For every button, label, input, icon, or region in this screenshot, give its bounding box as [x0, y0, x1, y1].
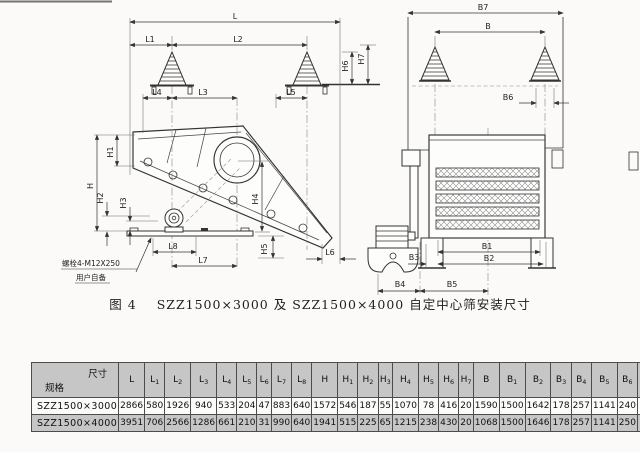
col-header-B: B [473, 363, 499, 398]
dim-label-L1: L1 [145, 35, 155, 44]
value-cell: 78 [418, 398, 438, 415]
dim-label-H5: H5 [260, 243, 269, 254]
value-cell: 580 [145, 398, 165, 415]
dim-label-L3: L3 [198, 88, 208, 97]
value-cell: 1926 [165, 398, 191, 415]
value-cell: 250 [617, 415, 637, 432]
dim-label-B3: B3 [409, 253, 420, 262]
figure-number: 图 4 [109, 294, 136, 313]
value-cell: 178 [551, 415, 571, 432]
value-cell: 20 [459, 398, 473, 415]
col-header-L: L [119, 363, 145, 398]
col-header-B2: B2 [525, 363, 551, 398]
col-header-L6: L6 [257, 363, 271, 398]
value-cell: 1500 [499, 398, 525, 415]
col-header-H6: H6 [439, 363, 459, 398]
col-header-L8: L8 [292, 363, 312, 398]
corner-label-model: 规格 [45, 380, 64, 394]
value-cell: 1500 [499, 415, 525, 432]
value-cell: 1590 [473, 398, 499, 415]
value-cell: 31 [257, 415, 271, 432]
col-header-L7: L7 [271, 363, 291, 398]
dim-label-H: H [86, 183, 95, 189]
motor-front-view [368, 226, 418, 272]
dim-label-B2: B2 [484, 254, 495, 263]
value-cell: 640 [292, 415, 312, 432]
value-cell: 3951 [119, 415, 145, 432]
table-row: SZZ1500×40003951706256612866612103199064… [32, 415, 640, 432]
value-cell: 55 [378, 398, 392, 415]
dim-label-L5: L5 [286, 88, 296, 97]
value-cell: 2566 [165, 415, 191, 432]
col-header-H3: H3 [378, 363, 392, 398]
spec-table: 尺寸 规格 LL1L2L3L4L5L6L7L8HH1H2H3H4H5H6H7BB… [31, 362, 640, 432]
drive-sheave-cover [402, 150, 420, 166]
col-header-H: H [312, 363, 338, 398]
col-header-B5: B5 [591, 363, 617, 398]
table-corner-cell: 尺寸 规格 [32, 363, 119, 398]
screen-deck-strips [436, 168, 539, 229]
model-cell: SZZ1500×4000 [32, 415, 119, 432]
dim-label-L: L [233, 12, 238, 21]
value-cell: 883 [271, 398, 291, 415]
dim-label-B1: B1 [482, 242, 493, 251]
dim-label-L4: L4 [152, 88, 162, 97]
technical-drawing: L L1 L2 L4 L3 L5 H6 H7 H H1 H2 H3 H4 H5 … [0, 0, 640, 300]
value-cell: 257 [571, 415, 591, 432]
value-cell: 178 [551, 398, 571, 415]
value-cell: 1070 [393, 398, 419, 415]
belt-guard [410, 166, 418, 238]
dim-label-H3: H3 [119, 197, 128, 208]
support-foot [421, 238, 443, 268]
spec-table-wrapper: 尺寸 规格 LL1L2L3L4L5L6L7L8HH1H2H3H4H5H6H7BB… [31, 362, 640, 432]
bolt-note-line2: 用户自备 [76, 272, 106, 282]
value-cell: 661 [217, 415, 237, 432]
col-header-L4: L4 [217, 363, 237, 398]
value-cell: 1215 [393, 415, 419, 432]
value-cell: 706 [145, 415, 165, 432]
col-header-L2: L2 [165, 363, 191, 398]
dim-label-B5: B5 [447, 280, 458, 289]
col-header-B3: B3 [551, 363, 571, 398]
value-cell: 640 [292, 398, 312, 415]
col-header-B6: B6 [617, 363, 637, 398]
value-cell: 990 [271, 415, 291, 432]
value-cell: 20 [459, 415, 473, 432]
value-cell: 515 [338, 415, 358, 432]
motor-side-view [165, 209, 183, 232]
corner-label-dimension: 尺寸 [88, 366, 107, 380]
col-header-H7: H7 [459, 363, 473, 398]
value-cell: 1572 [312, 398, 338, 415]
value-cell: 238 [418, 415, 438, 432]
value-cell: 1141 [591, 415, 617, 432]
value-cell: 210 [237, 415, 257, 432]
dim-label-H6: H6 [341, 60, 350, 71]
dim-label-H2: H2 [96, 192, 105, 203]
value-cell: 546 [338, 398, 358, 415]
figure-caption: 图 4 SZZ1500×3000 及 SZZ1500×4000 自定中心筛安装尺… [0, 294, 640, 313]
value-cell: 47 [257, 398, 271, 415]
value-cell: 1068 [473, 415, 499, 432]
value-cell: 1642 [525, 398, 551, 415]
value-cell: 1141 [591, 398, 617, 415]
side-view-drawing: L L1 L2 L4 L3 L5 H6 H7 H H1 H2 H3 H4 H5 … [61, 12, 380, 283]
value-cell: 187 [358, 398, 378, 415]
col-header-L3: L3 [191, 363, 217, 398]
value-cell: 1286 [191, 415, 217, 432]
dim-label-B: B [485, 22, 491, 31]
value-cell: 1941 [312, 415, 338, 432]
value-cell: 225 [358, 415, 378, 432]
dim-label-L8: L8 [168, 242, 178, 251]
value-cell: 257 [571, 398, 591, 415]
dim-label-B7: B7 [478, 3, 489, 12]
value-cell: 2866 [119, 398, 145, 415]
col-header-H2: H2 [358, 363, 378, 398]
value-cell: 533 [217, 398, 237, 415]
dim-label-L7: L7 [198, 256, 208, 265]
front-view-drawing: B7 B B6 B1 B2 B3 B4 B5 [368, 3, 638, 295]
anchor-bolt [201, 228, 208, 231]
vibrator-circle [214, 137, 260, 183]
value-cell: 940 [191, 398, 217, 415]
figure-title: SZZ1500×3000 及 SZZ1500×4000 自定中心筛安装尺寸 [157, 294, 531, 313]
model-cell: SZZ1500×3000 [32, 398, 119, 415]
support-foot [531, 238, 553, 268]
col-header-B1: B1 [499, 363, 525, 398]
bolt-note-line1: 螺栓4-M12X250 [62, 258, 120, 268]
dim-label-L6: L6 [325, 248, 335, 257]
col-header-H5: H5 [418, 363, 438, 398]
col-header-L1: L1 [145, 363, 165, 398]
value-cell: 240 [617, 398, 637, 415]
dim-label-L2: L2 [233, 35, 243, 44]
value-cell: 65 [378, 415, 392, 432]
col-header-L5: L5 [237, 363, 257, 398]
col-header-B4: B4 [571, 363, 591, 398]
dim-label-H1: H1 [106, 146, 115, 157]
table-row: SZZ1500×30002866580192694053320447883640… [32, 398, 640, 415]
base-plate [127, 231, 253, 236]
dim-label-H7: H7 [357, 53, 366, 64]
dim-label-B6: B6 [503, 93, 514, 102]
value-cell: 1646 [525, 415, 551, 432]
value-cell: 430 [439, 415, 459, 432]
value-cell: 416 [439, 398, 459, 415]
dim-label-B4: B4 [395, 280, 406, 289]
scanned-drawing-page: L L1 L2 L4 L3 L5 H6 H7 H H1 H2 H3 H4 H5 … [0, 0, 640, 452]
value-cell: 204 [237, 398, 257, 415]
col-header-H1: H1 [338, 363, 358, 398]
col-header-H4: H4 [393, 363, 419, 398]
dim-label-H4: H4 [251, 193, 260, 204]
